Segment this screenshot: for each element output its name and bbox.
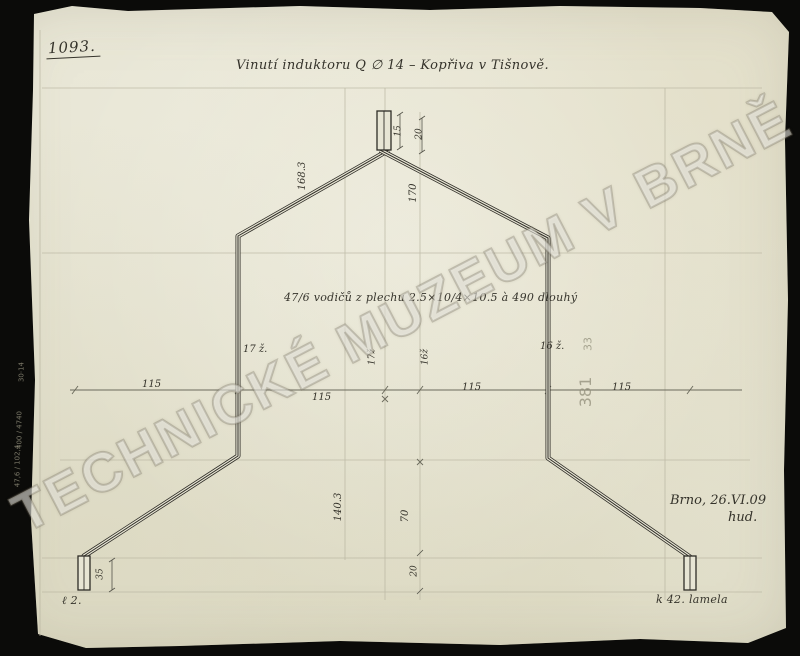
drawing-number: 1093.	[46, 39, 101, 60]
scanned-drawing: 1093. Vinutí induktoru Q ∅ 14 – Kopřiva …	[0, 0, 800, 656]
margin-note-1: 30·14	[19, 362, 26, 382]
top-offset-dim: 20	[416, 128, 425, 139]
margin-note-2: 400 / 4740	[17, 411, 24, 449]
span-dim-4: 115	[612, 383, 631, 393]
span-dim-3: 115	[462, 383, 481, 393]
archive-number: 381	[578, 377, 594, 408]
terminal-left-label: ℓ 2.	[62, 595, 82, 606]
span-dim-1: 115	[142, 380, 161, 390]
bottom-terminal-height-dim: 35	[97, 568, 106, 579]
upper-right-height-dim: 170	[409, 183, 419, 202]
archive-number-secondary: 33	[583, 337, 594, 351]
lower-left-height-dim: 140.3	[334, 493, 344, 522]
signature: hud.	[728, 511, 757, 524]
upper-left-slope-dim: 168.3	[298, 162, 308, 191]
turns-right-label: 16 ž.	[540, 342, 564, 352]
lower-right-height-dim: 70	[401, 510, 411, 523]
top-terminal-height-dim: 15	[395, 125, 404, 136]
drawing-title: Vinutí induktoru Q ∅ 14 – Kopřiva v Tišn…	[236, 59, 549, 72]
turns-center-right-label: 16ž	[422, 349, 431, 365]
bottom-offset-dim: 20	[411, 565, 420, 576]
place-date: Brno, 26.VI.09	[670, 494, 766, 507]
terminal-right-label: k 42. lamela	[656, 594, 728, 605]
